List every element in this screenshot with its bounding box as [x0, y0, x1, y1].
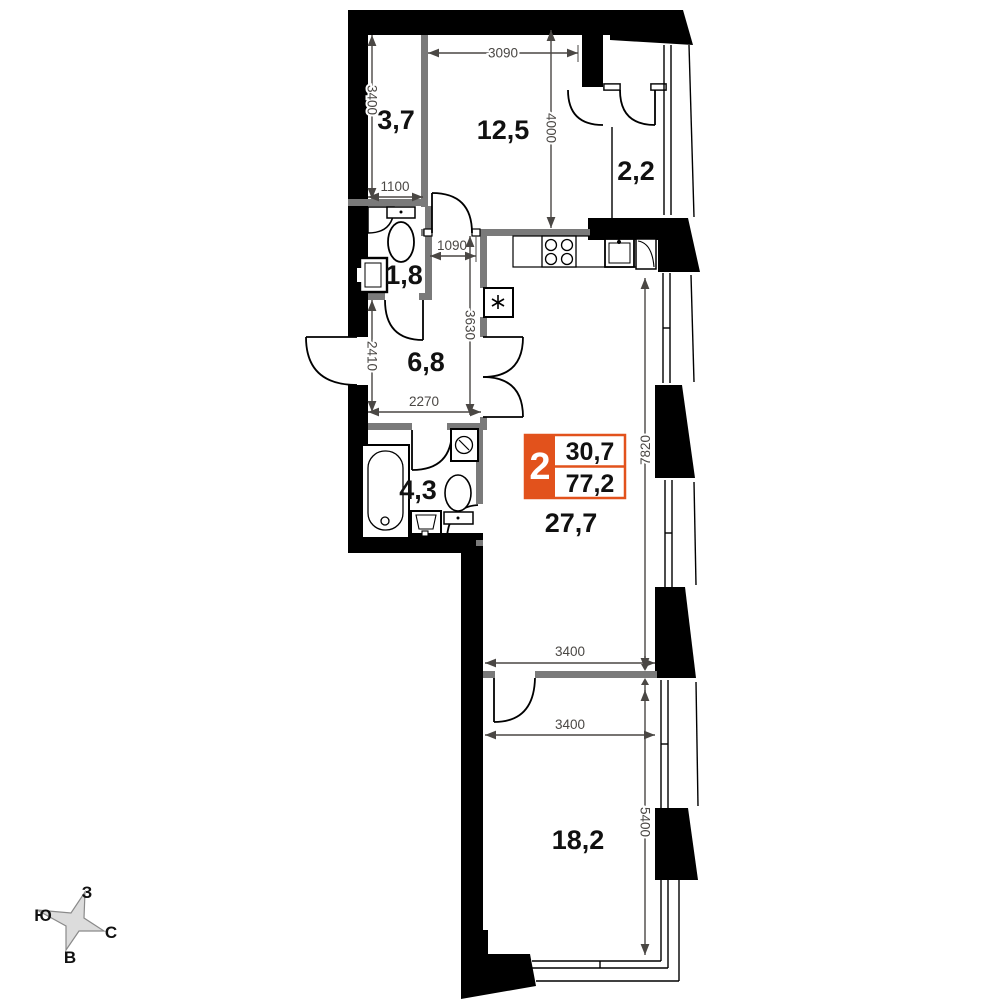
- dim-text: 4000: [544, 113, 559, 143]
- partition-37-18: [348, 199, 428, 206]
- double-door-arc-top: [483, 337, 523, 377]
- facade-outer-line: [696, 682, 698, 806]
- balcony-door-arc-left: [568, 90, 603, 125]
- partition-kitchen-top: [472, 229, 590, 236]
- facade-outer-line: [689, 45, 694, 217]
- floor-plan: 3400 3090 4000 1100 1090 3630 2410 2270 …: [0, 0, 1001, 1001]
- facade-outer-line: [694, 482, 696, 585]
- dim-text: 7820: [638, 435, 653, 465]
- dim-text: 3630: [463, 310, 478, 340]
- room-label-kitchen-living: 27,7: [545, 508, 598, 538]
- bedroom-door-arc: [432, 193, 472, 233]
- wc-door-arc: [385, 300, 423, 340]
- room-label-bedroom-2: 18,2: [552, 825, 605, 855]
- compass-north: С: [105, 923, 117, 942]
- kitchen-sink-icon: [605, 236, 634, 267]
- door-jamb: [424, 229, 432, 236]
- partition-hall-kitchen-a: [480, 236, 487, 288]
- wall-bottom-left-corner: [461, 930, 536, 999]
- partition-wc-bottom-a: [368, 293, 385, 300]
- partition-277-182-a: [483, 671, 495, 678]
- compass-south: Ю: [34, 906, 52, 925]
- facade-pier-2: [655, 587, 696, 678]
- double-door-arc-bottom: [483, 377, 523, 417]
- room-label-entry-hall: 3,7: [377, 105, 415, 135]
- facade-outer-line: [691, 275, 694, 382]
- water-heater-icon: [357, 258, 387, 292]
- facade-pier-3: [655, 808, 698, 880]
- badge-rooms-count: 2: [529, 446, 550, 488]
- compass-west: З: [82, 883, 93, 902]
- door-jamb: [472, 229, 480, 236]
- wall-pier-balcony: [582, 35, 603, 87]
- dim-text: 1100: [380, 179, 409, 194]
- wall-top: [348, 10, 610, 35]
- stove-icon: [542, 236, 576, 267]
- badge-total-area: 77,2: [566, 470, 615, 498]
- wall-top-right-slant: [610, 10, 693, 45]
- compass-rose: З Ю С В: [34, 883, 117, 967]
- room-label-bathroom: 4,3: [399, 475, 437, 505]
- dim-text: 3400: [555, 717, 585, 732]
- room-label-wc: 1,8: [385, 260, 423, 290]
- room-label-bedroom: 12,5: [477, 115, 530, 145]
- badge-living-area: 30,7: [566, 438, 615, 466]
- partition-bath-top-a: [368, 423, 412, 430]
- bedroom2-door-arc: [494, 678, 535, 722]
- toilet-2-icon: [444, 475, 473, 524]
- partition-37-125: [421, 35, 428, 207]
- balcony-door-arc-right: [620, 90, 655, 125]
- dim-text: 3400: [555, 644, 585, 659]
- toilet-icon: [387, 207, 415, 262]
- area-badge: 2 30,7 77,2: [525, 435, 625, 498]
- partition-wc-bottom-b: [419, 293, 432, 300]
- dim-text: 3090: [488, 46, 518, 61]
- fridge-icon: [484, 288, 513, 317]
- door-jamb: [604, 84, 620, 90]
- room-label-balcony: 2,2: [617, 156, 655, 186]
- entrance-door-arc: [306, 337, 357, 385]
- dim-text: 2270: [409, 394, 439, 409]
- compass-east: В: [64, 948, 76, 967]
- partition-bath-right-stub: [476, 540, 483, 546]
- room-label-hallway: 6,8: [407, 347, 445, 377]
- facade-pier-1: [655, 385, 695, 478]
- floor-plan-drawing: 3400 3090 4000 1100 1090 3630 2410 2270 …: [0, 0, 1001, 1001]
- partition-hall-kitchen-b: [480, 317, 487, 337]
- wall-mid-left: [461, 533, 483, 932]
- dim-text: 2410: [365, 341, 380, 371]
- washing-machine-icon: [451, 429, 478, 461]
- kitchen-corner-unit: [636, 239, 656, 269]
- dim-text: 5400: [638, 807, 653, 837]
- partition-277-182-b: [535, 671, 657, 678]
- partition-wc-right: [425, 206, 432, 299]
- dim-text: 1090: [437, 238, 467, 253]
- bathroom-door-arc: [412, 430, 452, 470]
- bath-sink-icon: [411, 511, 441, 536]
